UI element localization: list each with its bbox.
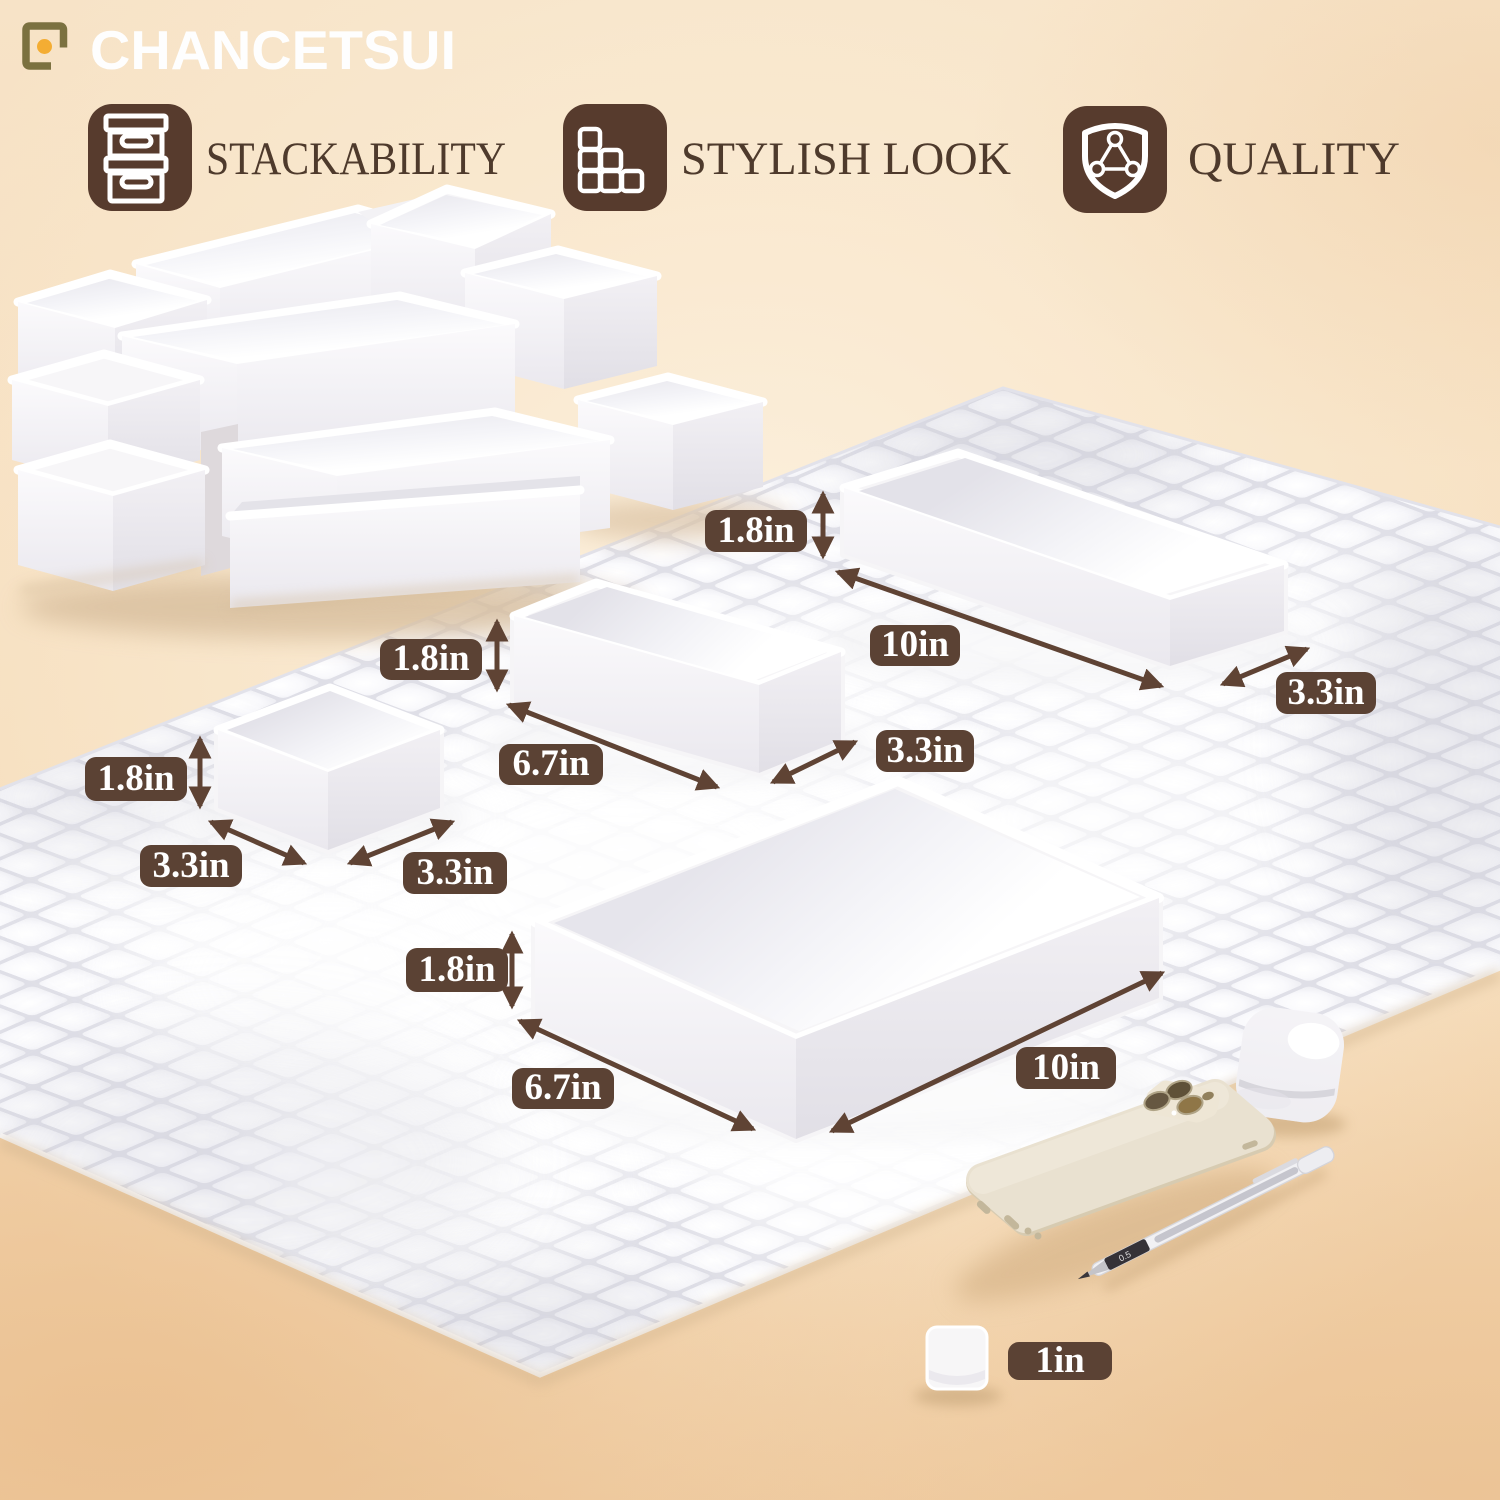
svg-text:QUALITY: QUALITY bbox=[1188, 133, 1400, 185]
svg-text:10in: 10in bbox=[1032, 1047, 1100, 1088]
svg-text:6.7in: 6.7in bbox=[524, 1067, 602, 1108]
svg-text:3.3in: 3.3in bbox=[886, 730, 964, 771]
svg-text:3.3in: 3.3in bbox=[416, 852, 494, 893]
svg-text:1in: 1in bbox=[1035, 1340, 1085, 1381]
svg-text:1.8in: 1.8in bbox=[392, 638, 470, 679]
svg-text:STYLISH LOOK: STYLISH LOOK bbox=[681, 133, 1011, 185]
svg-text:6.7in: 6.7in bbox=[512, 743, 590, 784]
svg-text:3.3in: 3.3in bbox=[152, 845, 230, 886]
svg-text:STACKABILITY: STACKABILITY bbox=[206, 133, 506, 185]
svg-text:3.3in: 3.3in bbox=[1287, 672, 1365, 713]
svg-text:1.8in: 1.8in bbox=[418, 949, 496, 990]
svg-text:1.8in: 1.8in bbox=[97, 758, 175, 799]
svg-text:CHANCETSUI: CHANCETSUI bbox=[90, 19, 456, 81]
svg-text:1.8in: 1.8in bbox=[717, 510, 795, 551]
svg-text:10in: 10in bbox=[881, 624, 949, 665]
